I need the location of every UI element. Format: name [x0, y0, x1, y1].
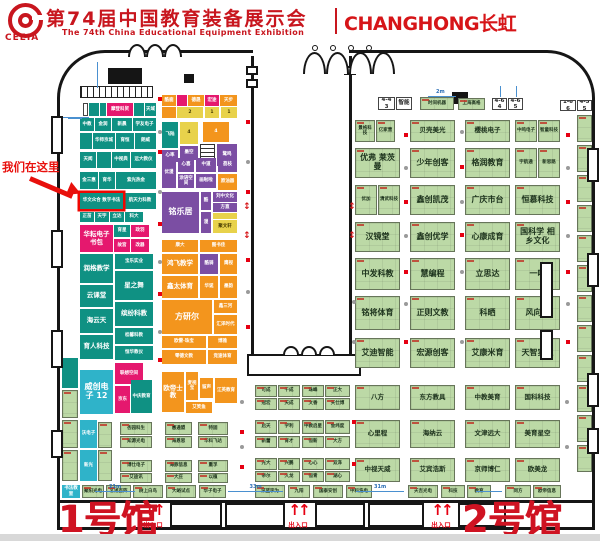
aisle-dot: [566, 234, 570, 238]
booth: 4-55: [577, 100, 592, 111]
booth: 中道: [196, 158, 216, 172]
booth: 正大: [325, 385, 350, 397]
corridor-wall: [592, 500, 595, 530]
booth: 恒华教仪: [115, 346, 153, 360]
booth: 千成: [278, 385, 300, 397]
corridor-room: [368, 503, 424, 527]
fire-point-marker: [158, 150, 162, 154]
booth: 启天: [255, 420, 277, 434]
fire-point-marker: [352, 462, 356, 466]
arch-dot: [348, 45, 354, 51]
booth: 正苗: [80, 212, 94, 222]
booth: 1: [205, 107, 219, 118]
exit-label: 出入口: [283, 519, 313, 529]
booth: 博雅: [208, 336, 237, 348]
booth: 新晨: [112, 118, 132, 131]
booth: 冠宏: [255, 398, 277, 410]
booth: 华科飞达: [198, 436, 228, 448]
fire-point-marker: [246, 325, 250, 329]
booth: 大庄: [165, 473, 192, 483]
booth: 久龙: [278, 471, 300, 482]
red-updown-arrow-icon: ↕: [348, 232, 356, 241]
booth: 文津远大: [465, 420, 510, 448]
booth: 中发科教: [355, 258, 400, 290]
booth: 朗威: [135, 133, 156, 149]
fire-point-marker: [240, 465, 244, 469]
booth: 4-65: [508, 98, 523, 110]
booth: 天域: [145, 103, 156, 116]
booth: 育星: [114, 225, 130, 237]
fire-point-marker: [158, 358, 162, 362]
booth: 育人科技: [80, 335, 113, 359]
fire-point-marker: [566, 200, 570, 204]
booth: 一鸣: [515, 258, 560, 290]
fire-point-marker: [158, 222, 162, 226]
booth: 鑫三河: [214, 300, 237, 313]
aisle-dot: [404, 166, 408, 170]
booth: 改器: [131, 239, 149, 252]
booth: 铭将体育: [355, 296, 400, 330]
fire-point-marker: [460, 165, 464, 169]
booth: [213, 213, 237, 219]
connecting-lobby: [247, 354, 361, 376]
booth: 文香: [302, 398, 324, 410]
booth: 育华: [99, 172, 115, 189]
booth: 天闻: [80, 152, 96, 168]
exhibition-floorplan-page: CEEIA 第74届中国教育装备展示会 The 74th China Educa…: [0, 0, 600, 541]
corridor-room: [170, 503, 222, 527]
aisle-dot: [404, 302, 408, 306]
booth: 1-66: [560, 100, 576, 111]
booth: 以植: [198, 473, 228, 483]
booth: 杏园科生: [120, 422, 152, 435]
booth: [80, 86, 153, 98]
wall-door: [540, 262, 553, 318]
dimension-label: 2m: [436, 89, 445, 95]
booth: 学利: [278, 420, 300, 434]
booth: 金润: [95, 118, 111, 131]
wall-door: [587, 253, 599, 287]
aisle-dot: [158, 190, 162, 194]
booth: 鑫创优学: [410, 222, 455, 252]
booth: 特固: [198, 422, 228, 435]
aisle-dot: [158, 260, 162, 264]
booth: [577, 205, 592, 232]
booth: 中教美育: [465, 385, 510, 410]
booth: 华师京城: [93, 133, 115, 149]
fire-point-marker: [566, 133, 570, 137]
booth: 故宫: [114, 239, 130, 252]
booth: 4-64: [492, 98, 507, 110]
aisle-dot: [565, 445, 569, 449]
booth: 漫: [201, 212, 211, 233]
booth: [62, 420, 78, 448]
dimension-label: 31m: [374, 484, 386, 490]
booth: 星之舞: [115, 271, 153, 300]
booth: 航天力科教: [124, 193, 156, 209]
booth: 麦视宝: [186, 372, 198, 400]
booth: 优弗 莱茨曼: [355, 148, 400, 178]
aisle-dot: [404, 234, 408, 238]
entrance-arch: [164, 44, 182, 57]
fire-point-marker: [404, 340, 408, 344]
booth: 知源光电: [120, 436, 152, 448]
booth: 恒新: [302, 436, 324, 448]
booth: 宇航通: [515, 148, 537, 178]
booth: 康大: [162, 240, 198, 252]
booth: 天步: [220, 95, 237, 106]
gap-left-wall: [251, 56, 254, 358]
aisle-dot: [566, 166, 570, 170]
booth: 海纳云: [410, 420, 455, 448]
booth: 华耘电子书包: [80, 225, 113, 252]
booth: 新蕾: [255, 436, 277, 448]
booth: 亿家营: [376, 120, 395, 142]
booth: 国科学 相乡文化: [515, 222, 560, 252]
booth: 鑫创凯茂: [410, 185, 455, 215]
booth: 大峪试点: [166, 485, 196, 498]
booth: 画啦啦: [196, 174, 216, 188]
dimension-line: [68, 118, 82, 119]
booth: [577, 295, 592, 322]
booth: 江英教育: [215, 378, 237, 403]
booth: 天仕博: [325, 398, 350, 410]
booth: 时间机器: [420, 97, 454, 110]
aisle-dot: [240, 445, 244, 449]
booth: 心心: [302, 458, 324, 470]
booth: 云课堂: [80, 285, 113, 307]
booth: 艾迪智能: [355, 338, 400, 368]
booth: 风向标: [515, 296, 560, 330]
dimension-line: [428, 96, 456, 97]
booth: 博仕电子: [120, 460, 152, 472]
booth: 酷: [201, 192, 211, 210]
red-updown-arrow-icon: ↕: [348, 203, 356, 212]
aisle-dot: [246, 160, 250, 164]
booth: [184, 74, 194, 83]
booth: 天吉光电: [408, 485, 438, 498]
booth: 铭乐居: [162, 192, 199, 233]
booth: 润格教学: [80, 254, 113, 283]
booth: 新光: [80, 450, 97, 481]
booth: 欧美龙: [515, 458, 560, 482]
booth: 京东: [115, 386, 130, 413]
fire-point-marker: [246, 190, 250, 194]
booth: 海豚信息: [165, 460, 192, 472]
booth: 珠峰: [302, 385, 324, 397]
corridor-room: [225, 503, 285, 527]
entrance-arch: [128, 44, 146, 57]
booth: 京师博仁: [465, 458, 510, 482]
booth: [80, 133, 92, 149]
booth: 育才: [278, 436, 300, 448]
booth: 立达: [110, 212, 124, 222]
booth: 零德文教: [162, 350, 206, 364]
booth: 正则文教: [410, 296, 455, 330]
aisle-dot: [460, 270, 464, 274]
booth: [62, 358, 78, 388]
fire-point-marker: [246, 258, 250, 262]
aisle-dot: [158, 330, 162, 334]
booth: 宏途: [205, 95, 219, 106]
booth: [108, 68, 142, 84]
wall-door: [51, 230, 63, 268]
booth: 鑫太体育: [162, 276, 198, 298]
dimension-line: [356, 491, 404, 492]
booth: 方直: [213, 203, 237, 212]
booth: 图书佳: [200, 240, 237, 252]
booth: [97, 152, 111, 168]
booth: 九阳: [288, 485, 310, 498]
booth: 国泰安创: [313, 485, 343, 498]
booth: 鹰视: [220, 254, 237, 274]
booth: 双泽: [325, 458, 350, 470]
booth: 远大教仪: [131, 152, 156, 168]
red-updown-arrow-icon: ↕: [243, 203, 251, 212]
exit-arrows-icon: ↑↑: [285, 501, 311, 519]
booth: 新思路: [538, 148, 560, 178]
booth: 宏源创客: [410, 338, 455, 368]
booth: 艾宾浩斯: [410, 458, 455, 482]
booth: 鸿飞教学: [162, 254, 198, 274]
booth: 方研尔: [162, 300, 212, 334]
booth: 缤纷科教: [115, 302, 153, 326]
arch-dot: [312, 45, 318, 51]
booth: 光大: [255, 458, 277, 470]
we-are-here-label: 我们在这里: [2, 159, 60, 175]
booth: 东方教具: [410, 385, 455, 410]
fire-point-marker: [158, 97, 162, 101]
booth: 涂语空间: [178, 174, 194, 188]
booth: 少年创客: [410, 148, 455, 178]
booth: 可成: [255, 385, 277, 397]
booth: 华子电子: [199, 485, 226, 498]
fire-point-marker: [566, 340, 570, 344]
booth: 重孚: [198, 460, 228, 472]
wall-door: [587, 148, 599, 182]
booth: 欧帝士教: [162, 372, 184, 412]
booth: 格润教育: [465, 148, 510, 178]
fire-point-marker: [352, 420, 356, 424]
fire-point-marker: [566, 270, 570, 274]
fire-point-marker: [404, 200, 408, 204]
booth: 艾迪讯: [120, 473, 152, 483]
fire-point-marker: [246, 120, 250, 124]
booth: 沃电子: [80, 420, 97, 448]
booth: 中鸣电子: [515, 120, 537, 142]
arch-dot: [366, 45, 372, 51]
booth: 华诞: [200, 276, 218, 298]
corridor-room: [315, 503, 365, 527]
booth: 天宇: [95, 212, 109, 222]
booth: 清武科技: [378, 185, 400, 215]
bottom-gray-strip: [0, 534, 600, 541]
booth: 天智实业: [515, 338, 560, 368]
booth: 湖心: [325, 471, 350, 482]
booth: 海云天: [80, 309, 113, 333]
booth: 竞速体育: [208, 350, 237, 364]
aisle-dot: [352, 300, 356, 304]
booth: [89, 103, 99, 116]
booth: 中庆教育: [131, 380, 152, 413]
wall-door: [540, 330, 553, 360]
aisle-dot: [246, 290, 250, 294]
fire-point-marker: [158, 292, 162, 296]
booth: 飞陆: [162, 122, 178, 148]
booth: 1: [221, 107, 237, 118]
red-updown-arrow-icon: ↕: [243, 232, 251, 241]
dimension-line: [228, 491, 283, 492]
booth: 中视天威: [355, 458, 400, 482]
wall-door: [51, 430, 63, 458]
booth: 刘中文化: [213, 192, 237, 202]
wall-door: [587, 373, 599, 407]
wall-door: [51, 116, 63, 154]
booth: 帝尔: [255, 471, 277, 482]
booth: 欧雷·珠宝: [162, 336, 206, 348]
booth: 惠通盟: [165, 422, 192, 435]
dimension-line: [516, 86, 517, 97]
booth: [62, 390, 78, 418]
booth: [98, 422, 112, 448]
booth: 八方: [355, 385, 400, 410]
booth: 宝乐实业: [115, 254, 153, 269]
fire-point-marker: [460, 233, 464, 237]
aisle-dot: [460, 130, 464, 134]
aisle-dot: [566, 302, 570, 306]
booth: 国科科技: [515, 385, 560, 410]
booth: [577, 325, 592, 352]
aisle-dot: [240, 400, 244, 404]
booth: 樱桃电子: [465, 120, 510, 142]
fire-point-marker: [404, 270, 408, 274]
booth: 汉镜堂: [355, 222, 400, 252]
booth: 中视典: [112, 152, 130, 168]
booth: 上海高格: [458, 98, 485, 110]
booth: 心喜: [178, 158, 194, 172]
booth: 大方: [325, 436, 350, 448]
aisle-dot: [460, 340, 464, 344]
aisle-dot: [565, 400, 569, 404]
booth: 威创电子 12: [80, 370, 113, 414]
wall-notch: [246, 79, 258, 88]
booth: 墨韵: [220, 276, 237, 298]
booth: 中教启星: [302, 420, 324, 434]
booth: 摩登科贸: [107, 103, 133, 116]
fire-point-marker: [240, 430, 244, 434]
booth: 科晒: [465, 296, 510, 330]
booth: 优加: [355, 185, 377, 215]
wall-door: [51, 330, 63, 368]
aisle-dot: [158, 130, 162, 134]
booth: 华文众合 数字书法: [80, 193, 123, 209]
fire-point-marker: [404, 133, 408, 137]
booth: 美育星空: [515, 420, 560, 448]
booth: 广庆市台: [465, 185, 510, 215]
booth: 酷骑: [200, 254, 218, 274]
booth: 桂馨科教: [115, 328, 153, 344]
booth: 心康成育: [465, 222, 510, 252]
dimension-line: [97, 62, 98, 88]
booth: [177, 95, 187, 106]
dimension-line: [500, 86, 501, 97]
booth: 立思达: [465, 258, 510, 290]
booth: 原油器: [218, 174, 237, 190]
booth: 汇泽时代: [214, 315, 237, 334]
aisle-dot: [352, 340, 356, 344]
booth: 艾康米育: [465, 338, 510, 368]
booth: 兴鹏: [278, 458, 300, 470]
booth: 优漫: [162, 158, 176, 188]
entrance-arch: [146, 44, 164, 57]
booth: 智童科技: [538, 120, 560, 142]
booth: 育恒: [116, 133, 134, 149]
booth: 聚文轩: [213, 220, 237, 233]
booth: [62, 450, 78, 481]
booth: 酷鹿: [162, 95, 176, 106]
booth: 学友电子: [133, 118, 156, 131]
booth: 4-43: [378, 97, 395, 110]
booth: 荔枝: [218, 158, 237, 172]
booth: 天成: [278, 398, 300, 410]
booth: 紫光热金: [116, 172, 156, 189]
booth: 景格科技: [355, 120, 375, 142]
booth: 2: [177, 107, 203, 118]
booth: [134, 103, 144, 116]
booth: [577, 115, 592, 142]
booth: 德晟: [188, 95, 204, 106]
exit-label: 出入口: [426, 519, 456, 529]
booth: 贝壳美光: [410, 120, 455, 142]
booth: [100, 103, 106, 116]
booth: 艾笑鱼: [186, 402, 212, 413]
booth: 4: [203, 122, 229, 142]
exit-arrows-icon: ↑↑: [428, 501, 454, 519]
booth: 科大: [125, 212, 143, 222]
booth: 海恩思: [165, 436, 192, 448]
wall-notch: [246, 66, 258, 75]
booth: 政羽: [131, 225, 149, 237]
booth: 慧编程: [410, 258, 455, 290]
dimension-label: 33m: [250, 484, 262, 490]
booth: [98, 450, 112, 481]
arch-dot: [330, 45, 336, 51]
booth: 中教: [80, 118, 94, 131]
booth: 留声: [200, 378, 213, 398]
booth: 金纬度: [325, 420, 350, 434]
booth: 智能: [396, 97, 412, 110]
booth: 恒慕科技: [515, 185, 560, 215]
booth: 恒青: [302, 471, 324, 482]
booth: [162, 107, 176, 118]
booth: [83, 103, 88, 116]
exhibit-hall-map: 摩登科贸天域中教金润新晨学友电子华师京城育恒朗威天闻中视典远大教仪金三惠育华紫光…: [0, 0, 600, 541]
wall-door: [587, 428, 599, 454]
booth: 4: [180, 122, 198, 144]
aisle-dot: [460, 200, 464, 204]
booth: 心里程: [355, 420, 400, 448]
